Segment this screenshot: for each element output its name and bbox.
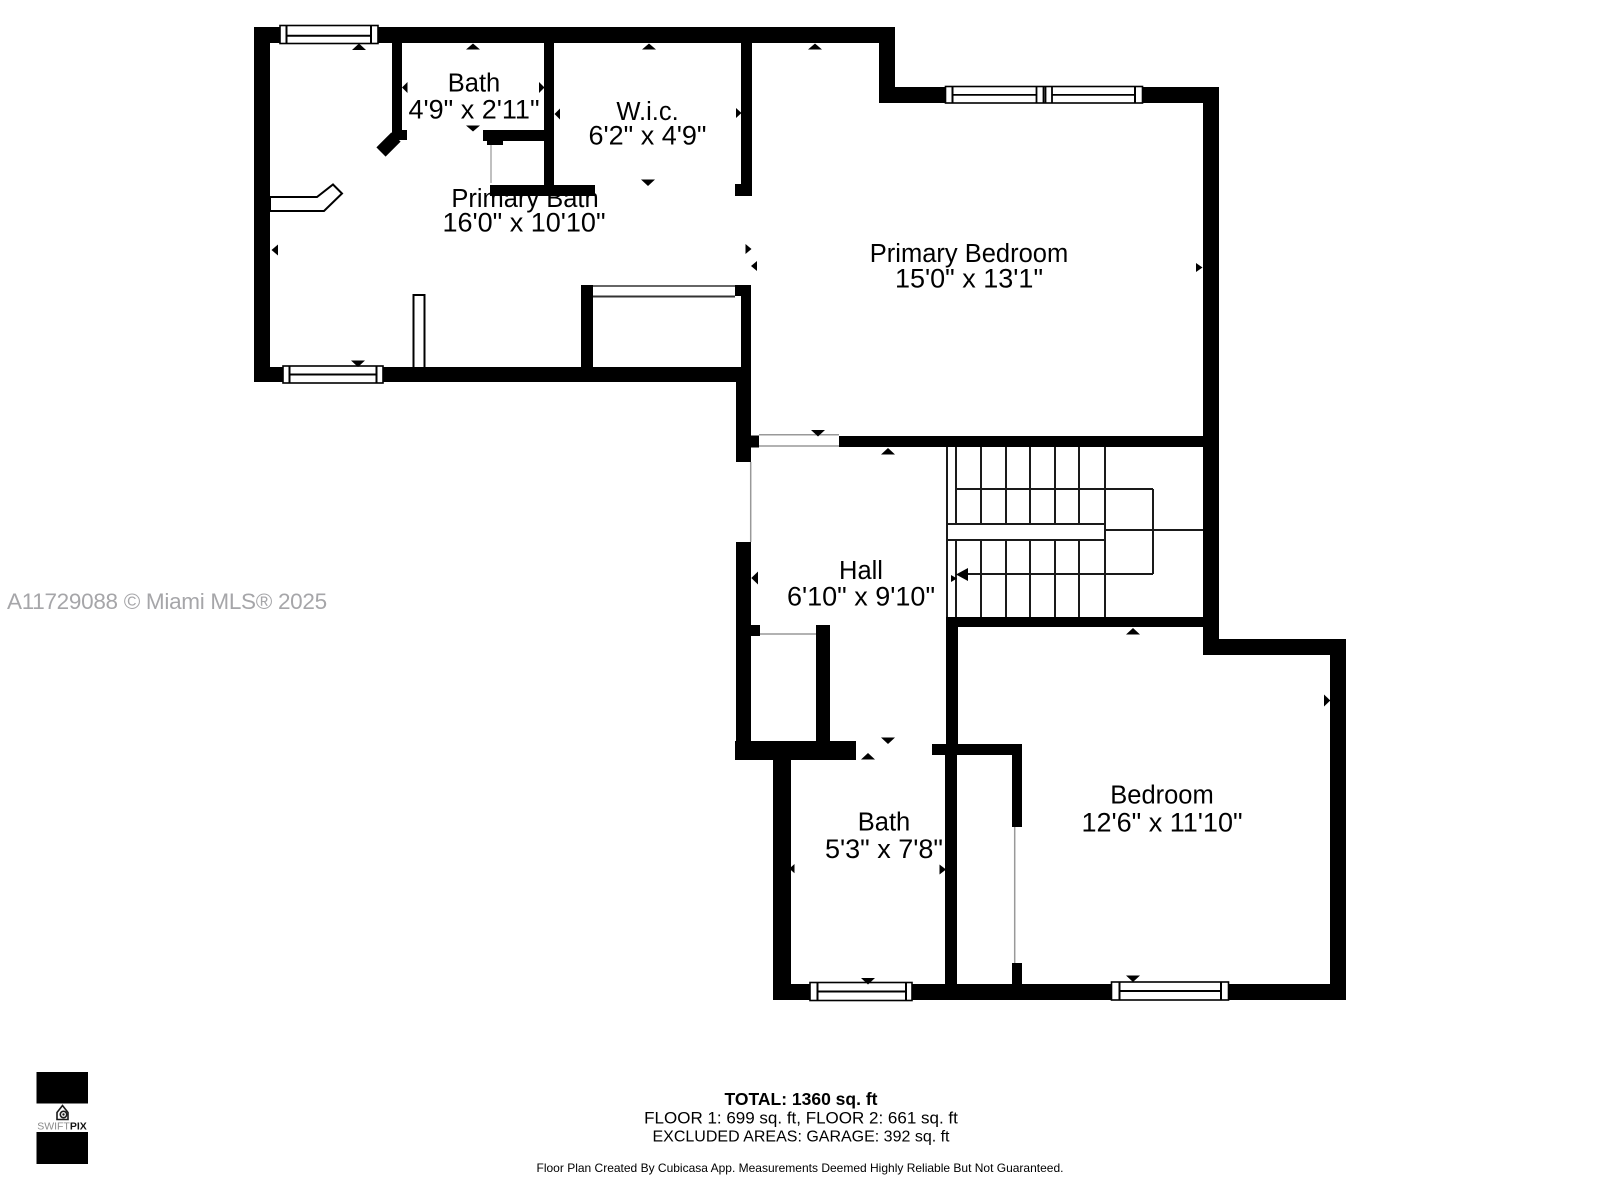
svg-text:A11729088 © Miami MLS® 2025: A11729088 © Miami MLS® 2025 [7, 589, 327, 614]
svg-text:TOTAL: 1360 sq. ft: TOTAL: 1360 sq. ft [725, 1089, 878, 1109]
svg-text:6'2" x 4'9": 6'2" x 4'9" [588, 121, 706, 151]
svg-text:Bath: Bath [858, 809, 910, 837]
svg-text:12'6" x 11'10": 12'6" x 11'10" [1081, 808, 1242, 838]
svg-text:Bedroom: Bedroom [1110, 782, 1213, 810]
svg-text:SWIFTPIX: SWIFTPIX [37, 1121, 87, 1133]
svg-text:15'0" x 13'1": 15'0" x 13'1" [895, 264, 1043, 294]
svg-text:16'0" x 10'10": 16'0" x 10'10" [442, 208, 605, 238]
svg-text:6'10" x 9'10": 6'10" x 9'10" [787, 582, 935, 612]
svg-text:EXCLUDED AREAS: GARAGE: 392 sq: EXCLUDED AREAS: GARAGE: 392 sq. ft [653, 1129, 951, 1146]
svg-text:Floor Plan Created By Cubicasa: Floor Plan Created By Cubicasa App. Meas… [537, 1161, 1064, 1175]
svg-text:5'3" x 7'8": 5'3" x 7'8" [825, 834, 943, 864]
svg-text:FLOOR 1: 699 sq. ft, FLOOR 2:: FLOOR 1: 699 sq. ft, FLOOR 2: 661 sq. ft [644, 1109, 958, 1128]
svg-text:Bath: Bath [448, 70, 500, 98]
svg-text:4'9" x 2'11": 4'9" x 2'11" [408, 95, 539, 125]
